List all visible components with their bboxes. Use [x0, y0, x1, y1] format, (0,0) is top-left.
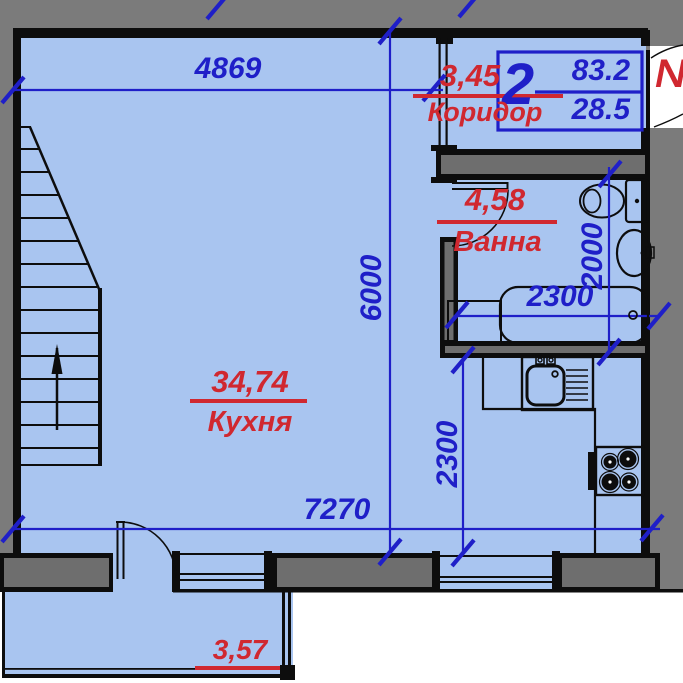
- bath-label-divider: [437, 220, 557, 224]
- dim-top-width: 4869: [153, 54, 303, 84]
- entrance-number-label: №: [655, 54, 683, 94]
- bath-area-label: 4,58: [450, 184, 540, 215]
- apartment-living-area: 28.5: [540, 95, 630, 125]
- apartment-total-area: 83.2: [540, 56, 630, 86]
- kitchen-label-divider: [190, 399, 307, 403]
- bath-name-label: Ванна: [445, 228, 550, 257]
- floor-plan: 4869 6000 7270 2300 2000 2300 2 83.2 28.…: [0, 0, 683, 683]
- balcony-label-divider: [195, 666, 280, 670]
- corridor-name-label: Коридор: [420, 99, 550, 126]
- dim-kitchen-recess: 2300: [433, 394, 463, 514]
- balcony-area-label: 3,57: [200, 636, 280, 664]
- corridor-area-label: 3,45: [425, 60, 515, 91]
- kitchen-name-label: Кухня: [195, 408, 305, 437]
- dim-bottom-width: 7270: [262, 495, 412, 525]
- dim-left-height: 6000: [357, 228, 387, 348]
- kitchen-area-label: 34,74: [195, 366, 305, 397]
- dim-bath-width: 2300: [485, 282, 635, 312]
